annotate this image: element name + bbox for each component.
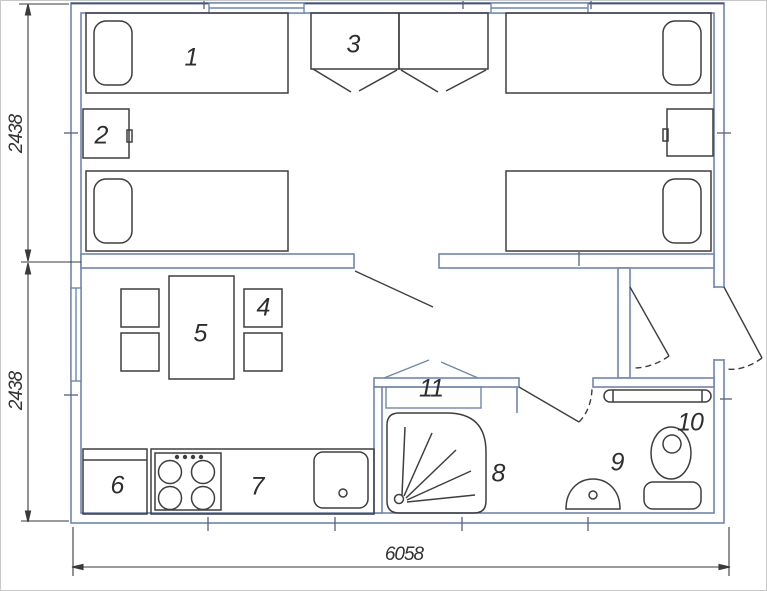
floor-plan-drawing [1,1,767,591]
exterior-door-opening [712,287,726,360]
floor-plan-page: 1 2 3 4 5 6 7 8 9 10 11 2438 2438 6058 [0,0,767,591]
window-top-left [209,3,304,13]
walls [71,3,724,523]
window-left-wall [71,288,81,381]
window-top-right [491,3,588,13]
entrance-door [724,287,762,369]
